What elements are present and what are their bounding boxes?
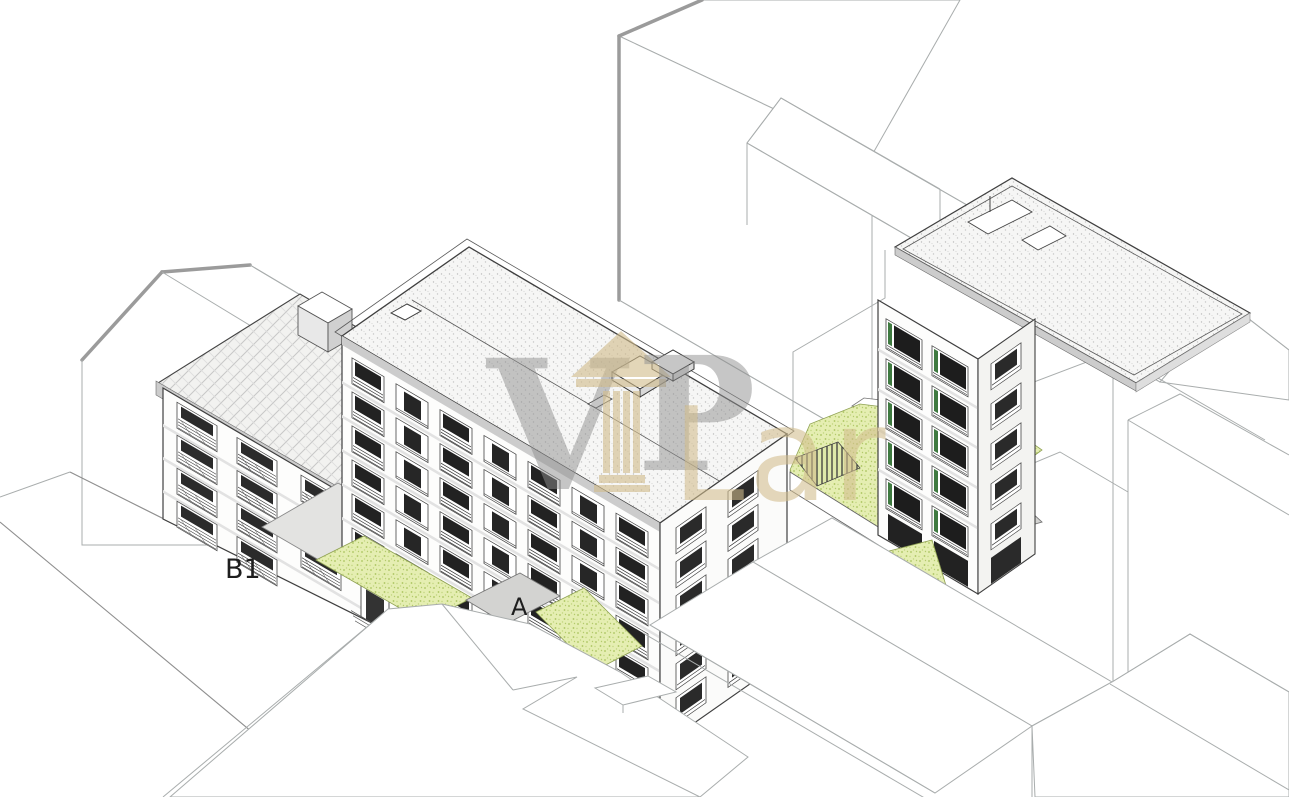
site-drawing-canvas: B1 A V P Lar bbox=[0, 0, 1289, 797]
architectural-drawing: B1 A V P Lar bbox=[0, 0, 1289, 797]
label-entrance-a: A bbox=[511, 593, 528, 621]
watermark-word-lar: Lar bbox=[672, 379, 890, 531]
label-building-b1: B1 bbox=[225, 554, 261, 585]
building-right-tower bbox=[870, 178, 1250, 604]
